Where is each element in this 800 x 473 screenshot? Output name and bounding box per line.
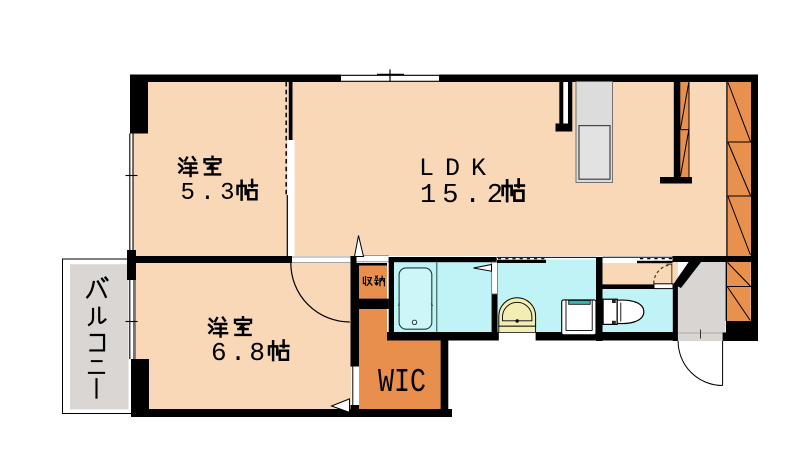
svg-text:6.8: 6.8 <box>211 338 265 368</box>
svg-text:WIC: WIC <box>378 364 426 401</box>
svg-text:5.3: 5.3 <box>181 180 235 207</box>
svg-text:LDK: LDK <box>419 154 486 183</box>
